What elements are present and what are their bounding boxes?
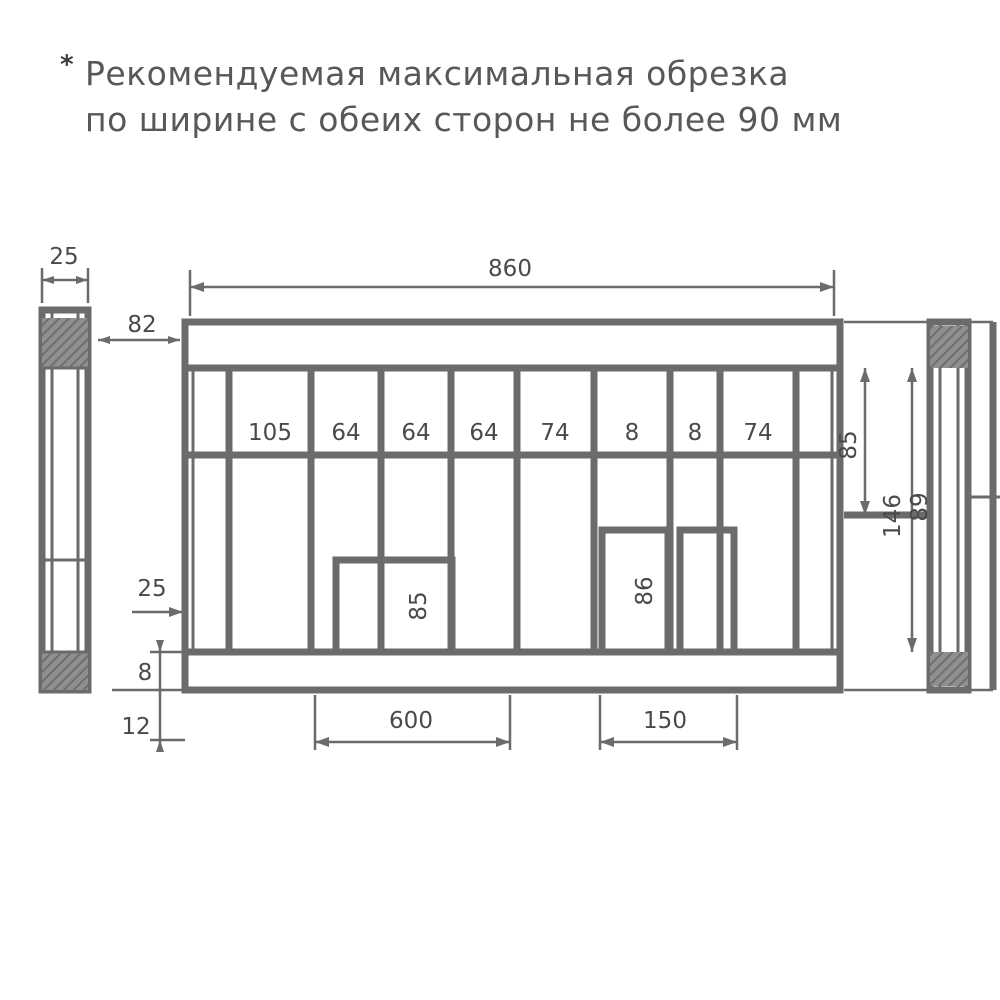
dim-label-opening-1-width: 600 xyxy=(389,708,433,734)
left-profile-top-hatch xyxy=(42,318,88,368)
right-profile-top-hatch xyxy=(930,326,968,368)
frame-front-view: 105 64 64 64 74 8 8 74 85 86 xyxy=(185,322,840,690)
opening-1-height-label: 85 xyxy=(406,591,432,620)
opening-1-outline xyxy=(336,560,452,652)
left-profile-section xyxy=(42,310,88,690)
technical-drawing-canvas: 25 82 105 64 64 64 74 8 8 74 xyxy=(0,0,1000,1000)
right-profile-outline xyxy=(930,322,968,690)
dim-label-side-gap: 82 xyxy=(127,312,156,338)
bay-width-label: 105 xyxy=(248,420,292,446)
bay-width-label: 8 xyxy=(625,420,640,446)
dim-label-left-offset: 25 xyxy=(137,576,166,602)
dimension-opening-1-width: 600 xyxy=(315,695,510,750)
dimension-opening-2-width: 150 xyxy=(600,695,737,750)
dimension-profile-width: 25 xyxy=(42,244,88,303)
left-profile-bottom-hatch xyxy=(42,652,88,690)
dim-label-right-inner: 89 xyxy=(907,492,933,521)
dim-label-overall-width: 860 xyxy=(488,256,532,282)
right-profile-bottom-hatch xyxy=(930,652,968,686)
arrowhead xyxy=(42,276,54,284)
bay-width-label: 8 xyxy=(688,420,703,446)
dim-label-profile-width: 25 xyxy=(49,244,78,270)
arrowhead xyxy=(76,276,88,284)
arrowhead xyxy=(98,336,110,344)
dim-label-left-bottom: 12 xyxy=(121,714,150,740)
arrowhead xyxy=(600,737,614,747)
opening-2-height-label: 86 xyxy=(632,576,658,605)
bay-width-label: 64 xyxy=(331,420,360,446)
dimension-left-bottom-stack: 8 12 xyxy=(112,640,185,752)
arrowhead xyxy=(860,368,870,382)
dim-label-left-lower: 8 xyxy=(138,660,153,686)
bay-width-label: 74 xyxy=(540,420,569,446)
bay-width-label: 64 xyxy=(401,420,430,446)
arrowhead xyxy=(168,336,180,344)
arrowhead xyxy=(156,740,164,752)
bay-width-label: 64 xyxy=(469,420,498,446)
arrowhead xyxy=(156,640,164,652)
arrowhead xyxy=(907,638,917,652)
arrowhead xyxy=(169,607,183,617)
arrowhead xyxy=(723,737,737,747)
bay-width-label: 74 xyxy=(743,420,772,446)
arrowhead xyxy=(820,282,834,292)
dimension-overall-width: 860 xyxy=(190,256,834,316)
dim-label-right-top: 85 xyxy=(836,430,862,459)
dim-label-opening-2-width: 150 xyxy=(643,708,687,734)
opening-2-right-outline xyxy=(680,530,734,652)
dimension-side-gap: 82 xyxy=(98,312,180,344)
arrowhead xyxy=(315,737,329,747)
dimension-right-verticals: 85 146 89 xyxy=(836,368,933,652)
dimension-left-offset: 25 xyxy=(132,576,183,617)
frame-outline xyxy=(185,322,840,690)
arrowhead xyxy=(190,282,204,292)
arrowhead xyxy=(907,368,917,382)
dim-label-right-height: 146 xyxy=(880,494,906,538)
arrowhead xyxy=(496,737,510,747)
